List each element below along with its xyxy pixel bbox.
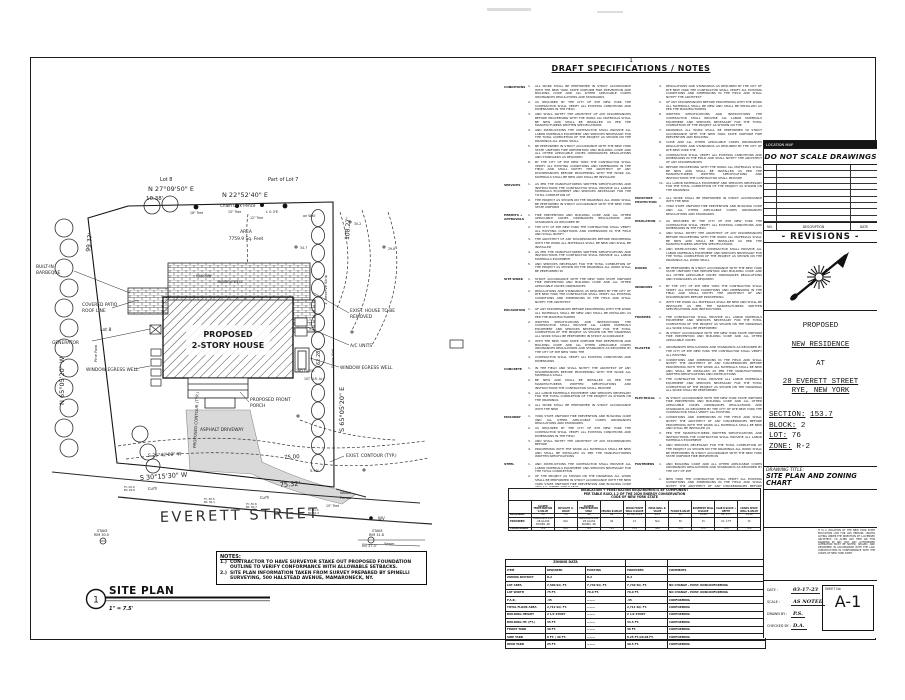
plan-label: WINDOW EGRESS WELL [340,365,393,371]
plan-label: 2-STORY HOUSE [192,341,264,350]
empty-box [764,490,877,528]
spec-section-label [635,478,659,487]
plan-label: S 25°42'00" W [148,451,182,459]
spec-item: 2.IN STRICT ACCORDANCE WITH THE NEW YORK… [659,332,762,343]
spec-item: 3.AND SHALL NOTIFY THE ARCHITECT OF ANY … [528,113,631,128]
zoning-row: LOT AREA7,500 SQ. FT.7,749 SQ. FT.7,749 … [506,582,766,589]
plan-label: 18" Tree [190,211,203,215]
plan-label: Curb [260,494,270,500]
spec-item: 1.OF ANY DISCREPANCIES BEFORE PROCEEDING… [528,308,631,319]
spec-item: 1.IN THE FIELD AND SHALL NOTIFY THE ARCH… [528,367,631,378]
project-address-2: RYE, NEW YORK [764,387,877,395]
zoning-row: FRONT YARD30 FT.———30 FT.CONFORMING [506,626,766,633]
spec-item: 1.IN STRICT ACCORDANCE WITH THE NEW YORK… [659,397,762,415]
revisions-title: - REVISIONS - [764,231,877,243]
plan-label: REMOVED [350,314,373,320]
revision-rows [764,165,877,223]
plan-label: WV [378,516,385,521]
zoning-row: REAR YARD25 FT.———40.5 FT.CONFORMING [506,641,766,648]
plan-label: S 30°15'30" W [140,471,189,482]
plan-label: 75.32' [280,480,301,489]
spec-item: 6.WRITTEN SPECIFICATIONS AND INSTRUCTION… [659,113,762,128]
spec-header: 1 DRAFT SPECIFICATIONS / NOTES [500,58,762,73]
spec-item: 3.AND SHALL NOTIFY THE ARCHITECT OF ANY … [528,440,631,447]
plan-label: PORCH [250,403,265,409]
date-row: DATE :03-17-23 [767,587,820,593]
plan-label: 1' Reserve Strip [323,274,328,305]
spec-item: 1.STRICT ACCORDANCE WITH THE NEW YORK ST… [528,278,631,289]
spec-item: 2.WRITTEN SPECIFICATIONS AND INSTRUCTION… [528,321,631,339]
plan-label: Fence [340,495,352,500]
spec-column-right: 4.REGULATIONS AND STANDARDS AS REQUIRED … [635,85,762,487]
drawing-title-box: DRAWING TITLE: SITE PLAN AND ZONING CHAR… [764,467,877,490]
generator-symbol [150,325,161,334]
plan-label: EXIST. CONTOUR (TYP.) [346,453,397,459]
rev-desc-header: DESCRIPTION [777,223,851,231]
zoning-row: F.A.R..35———.35CONFORMING [506,596,766,603]
info-box: DATE :03-17-23 SCALE :AS NOTED DRAWN BY … [764,581,877,638]
spec-section: SERVICES1.AS PER THE MANUFACTURERS WRITT… [504,183,631,211]
spec-section-label: PLASTER [635,346,659,394]
plan-label: 15" Tree [228,210,241,214]
notes-box: NOTES: 1.)CONTRACTOR TO HAVE SURVEYOR ST… [216,551,427,585]
spec-item: 11.ALL LABOR MATERIALS EQUIPMENT AND SER… [659,182,762,193]
spec-item: 1.FIRE PREVENTION AND BUILDING CODE AND … [528,214,631,225]
plan-label: 62.28' [316,349,322,365]
plan-label: PROPOSED [203,330,253,339]
plan-label: COVERED PATIO [82,302,118,308]
plan-label: 2ND FLOOR [296,369,315,373]
spec-item: 2.YORK STATE UNIFORM FIRE PREVENTION AND… [659,205,762,216]
spec-item: 1.BE PERFORMED IN STRICT ACCORDANCE WITH… [659,267,762,282]
spec-section: 4.REGULATIONS AND STANDARDS AS REQUIRED … [635,85,762,194]
drawn-by-row: DRAWN BY :P.S. [767,611,805,617]
spec-item: 3.THE CONTRACTOR SHALL PROVIDE ALL LABOR… [659,378,762,393]
revision-table-header: NO. DESCRIPTION DATE [764,223,877,231]
spec-item: 4.AS PER THE MANUFACTURERS WRITTEN SPECI… [528,251,631,262]
stamp-box: IT IS A VIOLATION OF THE NEW YORK STATE … [764,528,877,581]
note-item: 2.)SITE PLAN INFORMATION TAKEN FROM SURV… [220,571,423,582]
plan-label: Stone Wall [331,349,335,368]
spec-item: 1.YORK STATE UNIFORM FIRE PREVENTION AND… [528,415,631,426]
plan-label: 1ST FLR. ALJ [304,377,324,381]
spec-item: 1.ALL WORK SHALL BE PERFORMED IN STRICT … [528,85,631,100]
spec-section: WINDOWS1.BY THE CITY OF RYE NEW YORK THE… [635,285,762,313]
spec-item: 5.OF ANY DISCREPANCIES BEFORE PROCEEDING… [659,101,762,112]
spec-item: 1.AS REQUIRED BY THE CITY OF RYE NEW YOR… [659,220,762,231]
spec-item: 2.OF THE PROJECT AS SHOWN ON THE DRAWING… [528,475,631,487]
title-block: LOCATION MAP DO NOT SCALE DRAWINGS NO. D… [763,140,877,638]
project-title-box: PROPOSED NEW RESIDENCE AT 28 EVERETT STR… [764,311,877,467]
site-plan-scale: 1" = 7.5' [109,606,134,612]
spec-item: 1.THE CONTRACTOR SHALL PROVIDE ALL LABOR… [659,316,762,331]
zoning-row: ZONING DISTRICTR-2R-2R-2 [506,574,766,581]
spec-section: PLASTER1.ORDINANCES REGULATIONS AND STAN… [635,346,762,394]
spec-item: 4.PROCEEDING WITH THE WORK ALL MATERIALS… [528,448,631,459]
spec-section: SITE WORK1.STRICT ACCORDANCE WITH THE NE… [504,278,631,306]
north-arrow-box [764,243,877,311]
spec-section-label: INSULATION [635,220,659,264]
plan-label: EXIST. HOUSE TO BE [350,308,395,314]
spec-item: 2.CONDITIONS AND DIMENSIONS IN THE FIELD… [659,416,762,431]
plan-label: Part of Lot 7 [268,177,298,183]
plan-label: BUILT-IN [36,264,54,270]
spec-item: 2.CONDITIONS AND DIMENSIONS IN THE FIELD… [659,359,762,377]
spec-section: PERMITS + APPROVALS1.FIRE PREVENTION AND… [504,214,631,275]
plan-label: 10.38' [146,196,163,202]
spec-column-left: CONDITIONS1.ALL WORK SHALL BE PERFORMED … [504,85,631,487]
spec-section-label [635,85,659,194]
project-line-at: AT [764,360,877,368]
detail-number: 1 [93,596,99,606]
plan-label: Inv 27.0' [362,544,377,548]
plan-label: Lot 8 [160,177,173,183]
spec-section-label: SITE WORK [504,278,528,306]
section-line: SECTION: 153.7 [769,410,877,421]
spec-section: STEEL1.AND INSTRUCTIONS THE CONTRACTOR S… [504,463,631,487]
plan-label: 108.27' [344,217,352,240]
plan-label: Sewer [384,542,395,546]
spec-item: 5.AND SERVICES NECESSARY FOR THE TOTAL C… [528,263,631,274]
spec-item: 2.BE NEW AND SHALL BE INSTALLED AS PER T… [528,379,631,390]
spec-item: 6.BY THE CITY OF RYE NEW YORK THE CONTRA… [528,161,631,179]
plan-label: 34.7 [300,246,307,250]
spec-section: ELECTRICAL1.IN STRICT ACCORDANCE WITH TH… [635,397,762,461]
plan-label: N 27°09'50" E [148,185,194,193]
spec-item: 7.DRAWINGS ALL WORK SHALL BE PERFORMED I… [659,129,762,140]
spec-section-label: CONCRETE [504,367,528,412]
legend-box-artifact [450,340,463,348]
site-plan-title: SITE PLAN [109,585,174,597]
spec-section-label: WINDOWS [635,285,659,313]
zoning-row: LOT WIDTH75 FT.70.0 FT.70.0 FT.NO CHANGE… [506,589,766,596]
plan-label: on Wall [303,214,315,218]
note-item: 1.)CONTRACTOR TO HAVE SURVEYOR STAKE OUT… [220,560,423,571]
project-line-residence: NEW RESIDENCE [764,341,877,349]
spec-section-label: CONDITIONS [504,85,528,181]
do-not-scale-label: DO NOT SCALE DRAWINGS [764,149,877,165]
spec-item: 4.AND INSTRUCTIONS THE CONTRACTOR SHALL … [528,129,631,144]
zoning-table: ZONING DATAITEMREQUIREDEXISTINGPROPOSEDC… [505,559,765,649]
lot-line: LOT: 76 [769,431,877,442]
spec-item: 1.AND BUILDING CODE AND ALL OTHER APPLIC… [659,463,762,474]
spec-item: 1.NEW YORK THE CONTRACTOR SHALL VERIFY A… [659,478,762,487]
spec-item: 2.THE PROJECT AS SHOWN ON THE DRAWINGS A… [528,199,631,210]
plan-label: Lot 8 [100,327,112,333]
plan-label: ASPHALT DRIVEWAY [200,427,244,433]
plan-label: 29.8 [388,247,395,251]
spec-section: DOORS1.BE PERFORMED IN STRICT ACCORDANCE… [635,267,762,283]
plan-label: N 22°52'40" E [222,191,268,199]
plan-label: S 65°05'20" E [338,387,346,432]
project-line-proposed: PROPOSED [764,322,877,330]
revision-row [764,216,877,222]
spec-item: 1.AS PER THE MANUFACTURERS WRITTEN SPECI… [528,183,631,198]
sheet-number-box: SHEET No A-1 [822,585,874,631]
plan-label: 99.37' [85,232,94,252]
plan-label: GENERATOR [52,340,79,346]
spec-item: 5.BE PERFORMED IN STRICT ACCORDANCE WITH… [528,145,631,160]
spec-item: 1.BY THE CITY OF RYE NEW YORK THE CONTRA… [659,285,762,300]
spec-item: 2.AND SHALL NOTIFY THE ARCHITECT OF ANY … [659,232,762,247]
zoning-row: TOTAL FLOOR AREA2,712 SQ. FT.———2,711 SQ… [506,604,766,611]
spec-section-label: STEEL [504,463,528,487]
spec-section: FINISHES1.THE CONTRACTOR SHALL PROVIDE A… [635,316,762,344]
spec-item: 2.THE CITY OF RYE NEW YORK THE CONTRACTO… [528,226,631,237]
plan-label: BARBEQUE [36,270,61,276]
zoning-row: BUILDING HT. (FT.)35 FT.———34.5 FT.CONFO… [506,619,766,626]
spec-section: MOISTURE PROTECTION1.ALL WORK SHALL BE P… [635,197,762,218]
spec-item: 8.CODE AND ALL OTHER APPLICABLE CODES OR… [659,141,762,152]
plan-label: WINDOW EGRESS WELL [86,367,139,373]
spec-section-label: ELECTRICAL [635,397,659,461]
insulation-table: INSULATION + PENETRATION REQUIREMENTS BY… [508,488,761,531]
rev-date-header: DATE [851,223,877,231]
spec-item: 1.ORDINANCES REGULATIONS AND STANDARDS A… [659,346,762,357]
scale-row: SCALE :AS NOTED [767,599,825,605]
copyright-text: IT IS A VIOLATION OF THE NEW YORK STATE … [818,530,875,578]
site-plan-callout: 1 SITE PLAN 1" = 7.5' [86,585,270,612]
plan-label: BC 30.7 [246,505,257,509]
sheet-number-value: A-1 [823,591,873,613]
spec-section-label: FINISHES [635,316,659,344]
spec-section-label: FASTENERS [635,463,659,475]
plan-label: BC 30.1 [204,500,215,504]
spec-item: 3.WITH THE NEW YORK STATE UNIFORM FIRE P… [528,340,631,355]
plan-label: AREA [240,229,252,235]
spec-section-label: SERVICES [504,183,528,211]
spec-section: INSULATION1.AS REQUIRED BY THE CITY OF R… [635,220,762,264]
spec-section: CONCRETE1.IN THE FIELD AND SHALL NOTIFY … [504,367,631,412]
spec-item: 2.REGULATIONS AND STANDARDS AS REQUIRED … [528,290,631,305]
plan-label: A/C UNITS [350,343,372,349]
spec-section-label: PERMITS + APPROVALS [504,214,528,275]
asphalt-driveway [186,410,356,504]
spec-item: 4.AND SERVICES NECESSARY FOR THE TOTAL C… [659,444,762,459]
plan-label: 7759.9 Sq. Feet [229,236,264,242]
spec-section-label: DOORS [635,267,659,283]
plan-label: MASONRY [196,274,212,278]
checked-by-row: CHECKED BY :D.A. [767,623,807,629]
rev-no-header: NO. [764,223,777,231]
plan-label: WINDOW WELL [218,280,243,284]
plan-label: RIM 31.8 [369,533,384,537]
plan-label: PROPOSED FRONT [250,397,291,403]
plan-label: 5.95' [310,469,319,473]
spec-item: 10.BEFORE PROCEEDING WITH THE WORK ALL M… [659,166,762,181]
plan-label: RIM 30.0 [94,533,109,537]
spec-title: DRAFT SPECIFICATIONS / NOTES [500,64,762,73]
spec-section: CONDITIONS1.ALL WORK SHALL BE PERFORMED … [504,85,631,181]
spec-section: MASONRY1.YORK STATE UNIFORM FIRE PREVENT… [504,415,631,460]
plan-label: Curb [148,485,158,491]
spec-section-label: MASONRY [504,415,528,460]
north-arrow-icon [764,243,876,309]
plan-label: N 65°05'20" W [58,356,66,405]
spec-item: 2.AS REQUIRED BY THE CITY OF RYE NEW YOR… [528,427,631,438]
spec-item: 2.WITH THE WORK ALL MATERIALS SHALL BE N… [659,301,762,312]
spec-section: 1.NEW YORK THE CONTRACTOR SHALL VERIFY A… [635,478,762,487]
street-name: EVERETT STREET [160,506,320,526]
plan-label: Chain Link Fence [220,203,256,208]
spec-section: EXCAVATION1.OF ANY DISCREPANCIES BEFORE … [504,308,631,364]
plan-label: 75.00 [284,454,301,461]
plan-label: BC 29.6 [124,488,135,492]
spec-section: FASTENERS1.AND BUILDING CODE AND ALL OTH… [635,463,762,475]
spec-item: 3.ALL LABOR MATERIALS EQUIPMENT AND SERV… [528,392,631,403]
spec-item: 1.AND INSTRUCTIONS THE CONTRACTOR SHALL … [528,463,631,474]
spec-item: 2.AS REQUIRED BY THE CITY OF RYE NEW YOR… [528,101,631,112]
spec-item: 9.CONTRACTOR SHALL VERIFY ALL EXISTING C… [659,154,762,165]
window-egress-wells-left [151,349,161,386]
plan-label: BC 31.3 [308,511,319,515]
spec-item: 4.REGULATIONS AND STANDARDS AS REQUIRED … [659,85,762,100]
block-line: BLOCK: 2 [769,421,877,432]
plan-label: 30.2 [354,222,361,226]
plan-label: 12" Tree [250,216,263,220]
spec-item: 3.AND INSTRUCTIONS THE CONTRACTOR SHALL … [659,248,762,263]
plan-label: L 0.3'E [266,210,279,214]
spec-item: 4.CONTRACTOR SHALL VERIFY ALL EXISTING C… [528,356,631,363]
spec-section-label: EXCAVATION [504,308,528,364]
plan-label: 15" Tree [326,504,339,508]
zoning-row: BUILDING HEIGHT2 1/2 STORY———2 1/2 STORY… [506,611,766,618]
project-address-1: 28 EVERETT STREET [764,378,877,386]
location-map-label: LOCATION MAP [764,141,877,149]
spec-item: 1.ALL WORK SHALL BE PERFORMED IN STRICT … [659,197,762,204]
plan-label: Pine Row [93,345,98,362]
drawing-title-line2: CHART [766,480,875,487]
zoning-row: SIDE YARD8 FT. / 20 FT.———8.25 FT./20.08… [506,633,766,640]
zone-line: ZONE: R-2 [769,442,877,453]
spec-item: 3.THE ARCHITECT OF ANY DISCREPANCIES BEF… [528,238,631,249]
spec-section-label: MOISTURE PROTECTION [635,197,659,218]
plan-label: ROOF LINE [82,308,106,314]
spec-item: 3.PER THE MANUFACTURERS WRITTEN SPECIFIC… [659,432,762,443]
spec-item: 4.ALL WORK SHALL BE PERFORMED IN STRICT … [528,404,631,411]
